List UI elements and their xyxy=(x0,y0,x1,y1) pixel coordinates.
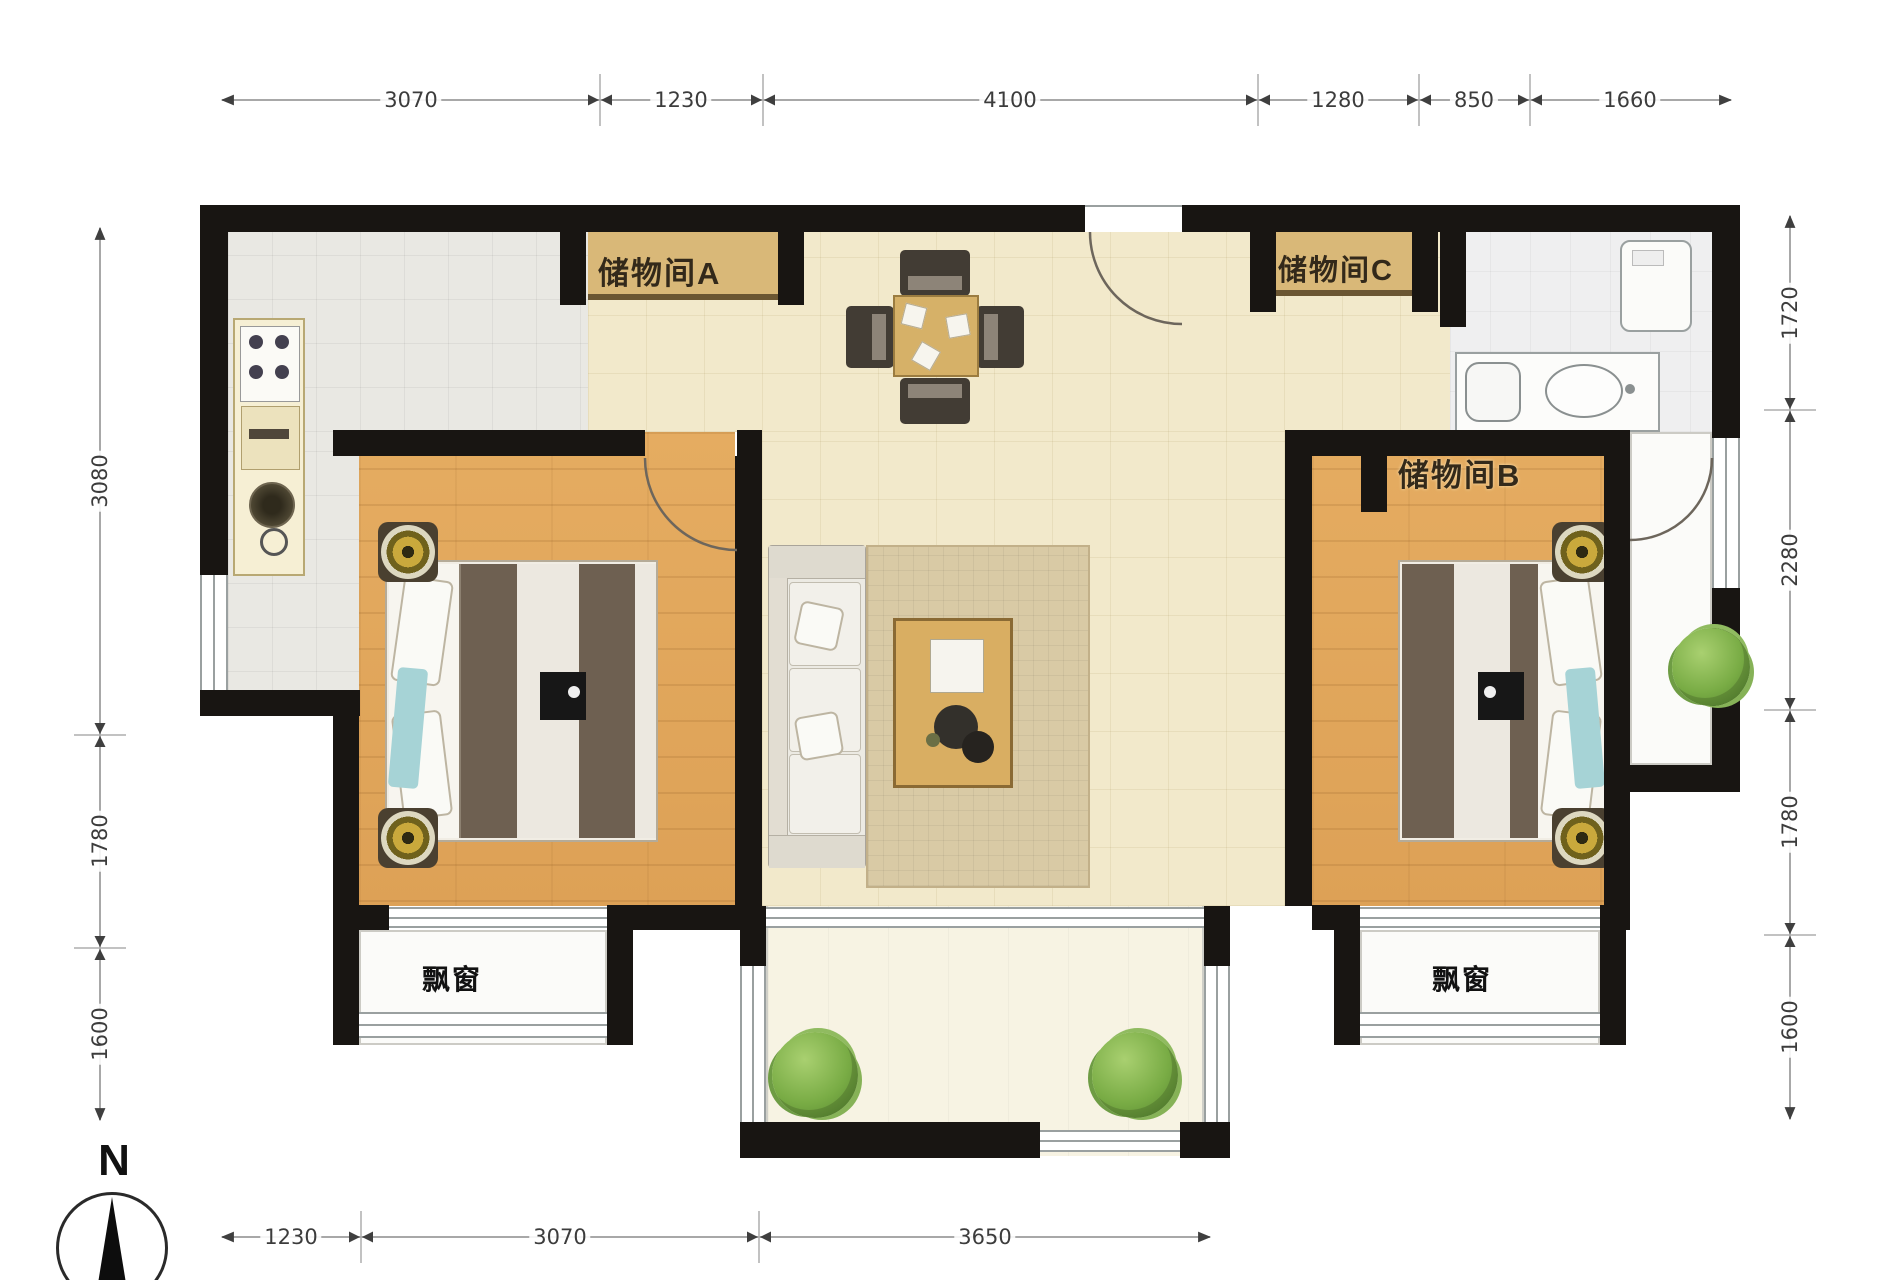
wall-segment xyxy=(333,905,389,930)
wall-segment xyxy=(607,905,762,930)
sofa-armrest xyxy=(769,835,865,868)
sofa xyxy=(768,545,866,868)
storage-a-label: 储物间A xyxy=(598,248,721,293)
wall-segment xyxy=(1600,905,1630,930)
dim-right-2: 2280 xyxy=(1778,529,1802,590)
tray-dot xyxy=(1484,686,1496,698)
bay-window-right-label: 飘窗 xyxy=(1432,958,1492,998)
dim-top-2: 1230 xyxy=(650,88,711,112)
washer-panel xyxy=(1632,250,1664,266)
board-handle xyxy=(249,429,289,439)
washing-machine xyxy=(1620,240,1692,332)
tray-dot xyxy=(568,686,580,698)
bedroom-left-bay-opening xyxy=(389,907,607,928)
dining-chair-bottom xyxy=(900,378,970,424)
table-pot-small xyxy=(962,731,994,763)
bay-window-left-label: 飘窗 xyxy=(422,958,482,998)
bed-tray xyxy=(1478,672,1524,720)
chair-seat xyxy=(872,314,886,360)
dining-chair-top xyxy=(900,250,970,296)
dining-table xyxy=(893,295,979,377)
bathroom-vanity xyxy=(1455,352,1660,432)
sofa-armrest xyxy=(769,546,865,579)
bay-window-left-glass xyxy=(359,1012,607,1038)
dim-bottom-1: 1230 xyxy=(260,1225,321,1249)
faucet-dot xyxy=(1625,384,1635,394)
wall-segment xyxy=(200,690,360,716)
wall-segment xyxy=(1440,232,1466,327)
wall-segment xyxy=(1285,430,1630,456)
bed-tray xyxy=(540,672,586,720)
plate xyxy=(911,341,941,371)
floor-plan: 储物间A 储物间C 储物间B 飘窗 飘窗 xyxy=(0,0,1885,1280)
dim-top-5: 850 xyxy=(1450,88,1498,112)
storage-c-label: 储物间C xyxy=(1278,247,1394,289)
side-corridor-floor xyxy=(1630,432,1712,765)
plate xyxy=(901,303,928,330)
wall-segment xyxy=(740,906,766,966)
entry-door-opening xyxy=(1085,205,1182,232)
burner xyxy=(275,335,289,349)
storage-b-label: 储物间B xyxy=(1398,450,1521,495)
nightstand-left-bottom xyxy=(378,808,438,868)
bathroom-sink xyxy=(1545,364,1623,418)
wall-segment xyxy=(607,930,633,1045)
right-wall-window xyxy=(1712,438,1740,588)
burner xyxy=(275,365,289,379)
toilet xyxy=(1465,362,1521,422)
wall-segment xyxy=(333,716,359,930)
plant-icon xyxy=(1672,628,1750,706)
balcony-side-window-left xyxy=(740,966,766,1136)
compass-north-label: N xyxy=(84,1136,144,1184)
storage-room-c: 储物间C xyxy=(1276,232,1412,296)
kitchen-sink xyxy=(249,482,295,528)
sofa-back xyxy=(769,578,788,835)
lamp-icon xyxy=(381,811,435,865)
dim-top-1: 3070 xyxy=(380,88,441,112)
chair-seat xyxy=(908,384,962,398)
wall-segment xyxy=(1626,765,1740,792)
wall-segment xyxy=(333,430,645,456)
wall-segment xyxy=(1250,232,1276,312)
dim-bottom-2: 3070 xyxy=(529,1225,590,1249)
burner xyxy=(249,365,263,379)
dim-top-3: 4100 xyxy=(979,88,1040,112)
cutting-board xyxy=(241,406,300,470)
wall-segment xyxy=(1180,1122,1230,1158)
wall-segment xyxy=(1285,430,1312,906)
kettle xyxy=(260,528,288,556)
bedroom-right-bay-opening xyxy=(1360,907,1600,928)
compass-needle-icon xyxy=(95,1197,129,1280)
plant-icon xyxy=(772,1032,858,1118)
chair-seat xyxy=(984,314,998,360)
wall-segment xyxy=(200,205,1740,232)
lamp-icon xyxy=(1555,525,1609,579)
wall-segment xyxy=(1600,930,1626,1045)
dim-bottom-3: 3650 xyxy=(954,1225,1015,1249)
burner xyxy=(249,335,263,349)
dim-right-1: 1720 xyxy=(1778,282,1802,343)
balcony-sliding-door xyxy=(765,907,1205,928)
dim-right-3: 1780 xyxy=(1778,791,1802,852)
wall-segment xyxy=(740,1122,1040,1158)
nightstand-right-bottom xyxy=(1552,808,1612,868)
chair-seat xyxy=(908,276,962,290)
nightstand-left-top xyxy=(378,522,438,582)
coffee-table xyxy=(893,618,1013,788)
dining-chair-right xyxy=(976,306,1024,368)
wall-segment xyxy=(1604,432,1630,930)
bed-right xyxy=(1398,560,1608,842)
dim-left-1: 3080 xyxy=(88,450,112,511)
plant-dot xyxy=(926,733,940,747)
wall-segment xyxy=(1412,232,1438,312)
dim-top-6: 1660 xyxy=(1599,88,1660,112)
lamp-icon xyxy=(1555,811,1609,865)
balcony-floor xyxy=(766,906,1204,1156)
bay-window-right-glass xyxy=(1360,1012,1600,1038)
dim-left-2: 1780 xyxy=(88,810,112,871)
wall-segment xyxy=(737,430,762,456)
wall-segment xyxy=(1361,456,1387,512)
wall-segment xyxy=(560,205,586,305)
wall-segment xyxy=(778,205,804,305)
kitchen-window xyxy=(200,575,228,703)
stove xyxy=(240,326,300,402)
sofa-pillow xyxy=(793,600,845,652)
storage-room-a: 储物间A xyxy=(588,232,778,300)
sofa-cushion xyxy=(789,754,861,834)
sofa-pillow xyxy=(794,711,845,762)
dim-right-4: 1600 xyxy=(1778,996,1802,1057)
wall-segment xyxy=(1712,205,1740,438)
nightstand-right-top xyxy=(1552,522,1612,582)
lamp-icon xyxy=(381,525,435,579)
wall-segment xyxy=(333,930,359,1045)
dim-left-3: 1600 xyxy=(88,1003,112,1064)
wall-segment xyxy=(1204,906,1230,966)
wall-segment xyxy=(1312,905,1360,930)
wall-segment xyxy=(1334,930,1360,1045)
plant-icon xyxy=(1092,1032,1178,1118)
bed-left xyxy=(385,560,658,842)
plate xyxy=(945,313,970,338)
table-napkin xyxy=(930,639,984,693)
balcony-side-window-right xyxy=(1204,966,1230,1136)
wall-segment xyxy=(735,456,762,906)
balcony-bottom-window xyxy=(1040,1130,1180,1152)
dining-chair-left xyxy=(846,306,894,368)
dim-top-4: 1280 xyxy=(1307,88,1368,112)
